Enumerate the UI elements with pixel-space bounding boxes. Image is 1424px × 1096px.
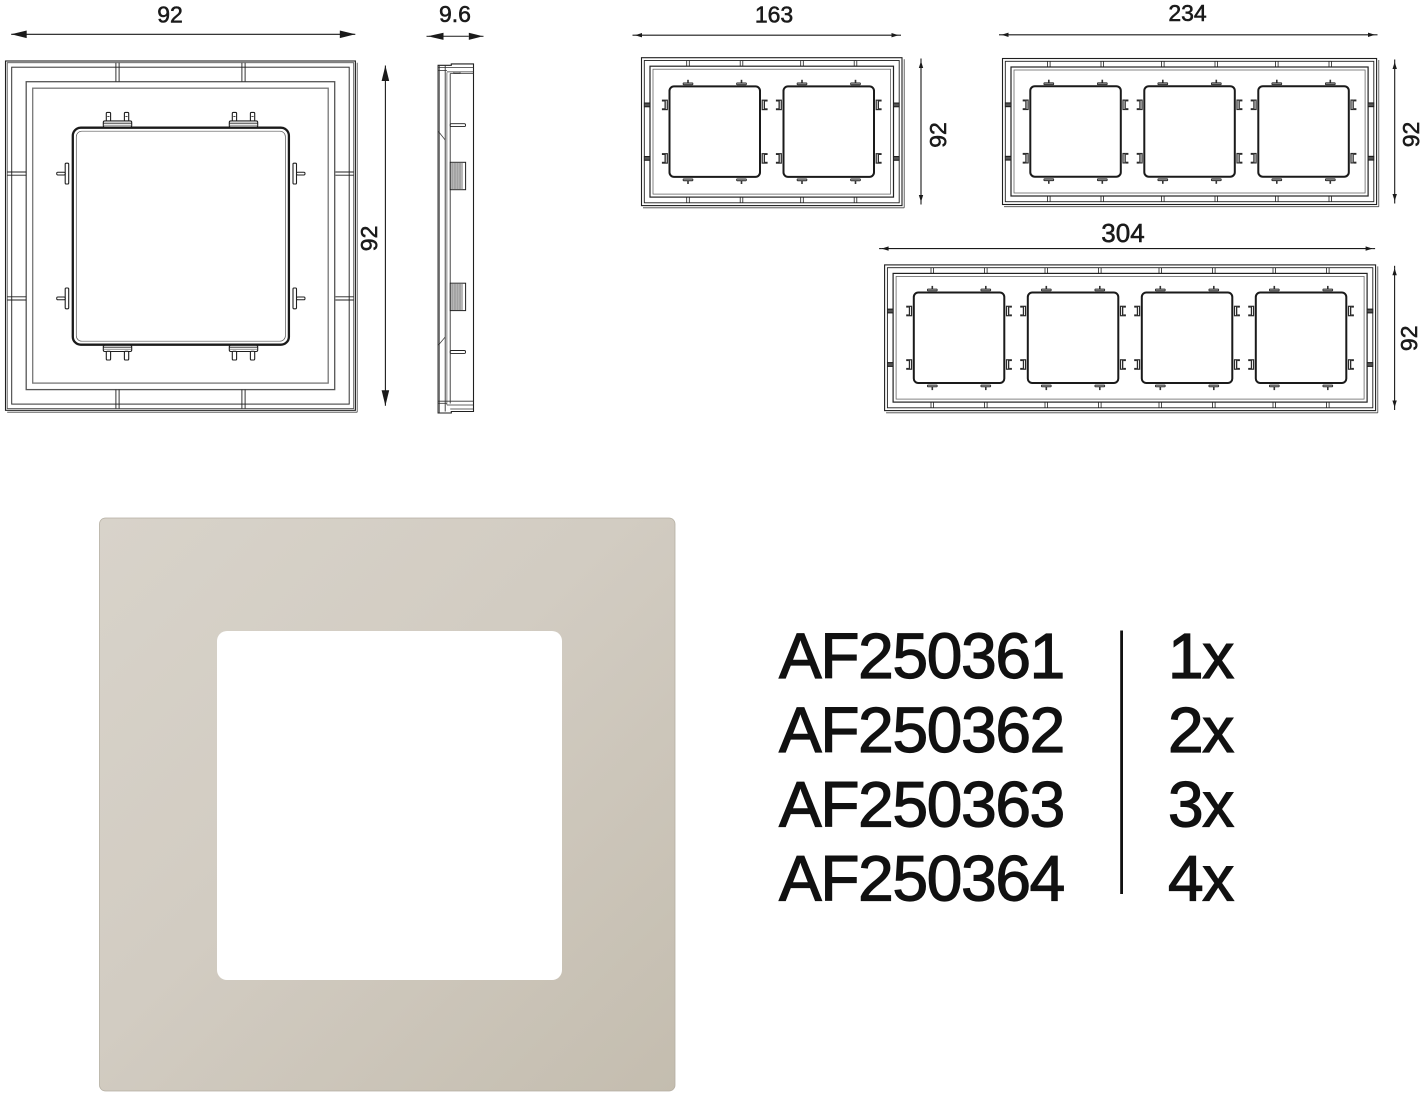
svg-text:234: 234 bbox=[1168, 0, 1207, 26]
svg-text:AF250362: AF250362 bbox=[779, 694, 1064, 766]
svg-text:92: 92 bbox=[356, 226, 382, 252]
svg-text:2x: 2x bbox=[1168, 694, 1234, 766]
svg-text:304: 304 bbox=[1101, 218, 1144, 248]
svg-text:3x: 3x bbox=[1168, 768, 1234, 840]
svg-text:AF250364: AF250364 bbox=[779, 842, 1064, 914]
svg-text:163: 163 bbox=[755, 1, 793, 27]
svg-text:4x: 4x bbox=[1168, 842, 1234, 914]
svg-text:92: 92 bbox=[1398, 122, 1424, 148]
svg-text:AF250361: AF250361 bbox=[779, 620, 1064, 692]
svg-text:92: 92 bbox=[1396, 326, 1422, 352]
svg-text:1x: 1x bbox=[1168, 620, 1234, 692]
svg-text:92: 92 bbox=[925, 122, 951, 148]
svg-text:9.6: 9.6 bbox=[439, 1, 471, 27]
svg-text:92: 92 bbox=[157, 1, 183, 27]
svg-text:AF250363: AF250363 bbox=[779, 768, 1064, 840]
